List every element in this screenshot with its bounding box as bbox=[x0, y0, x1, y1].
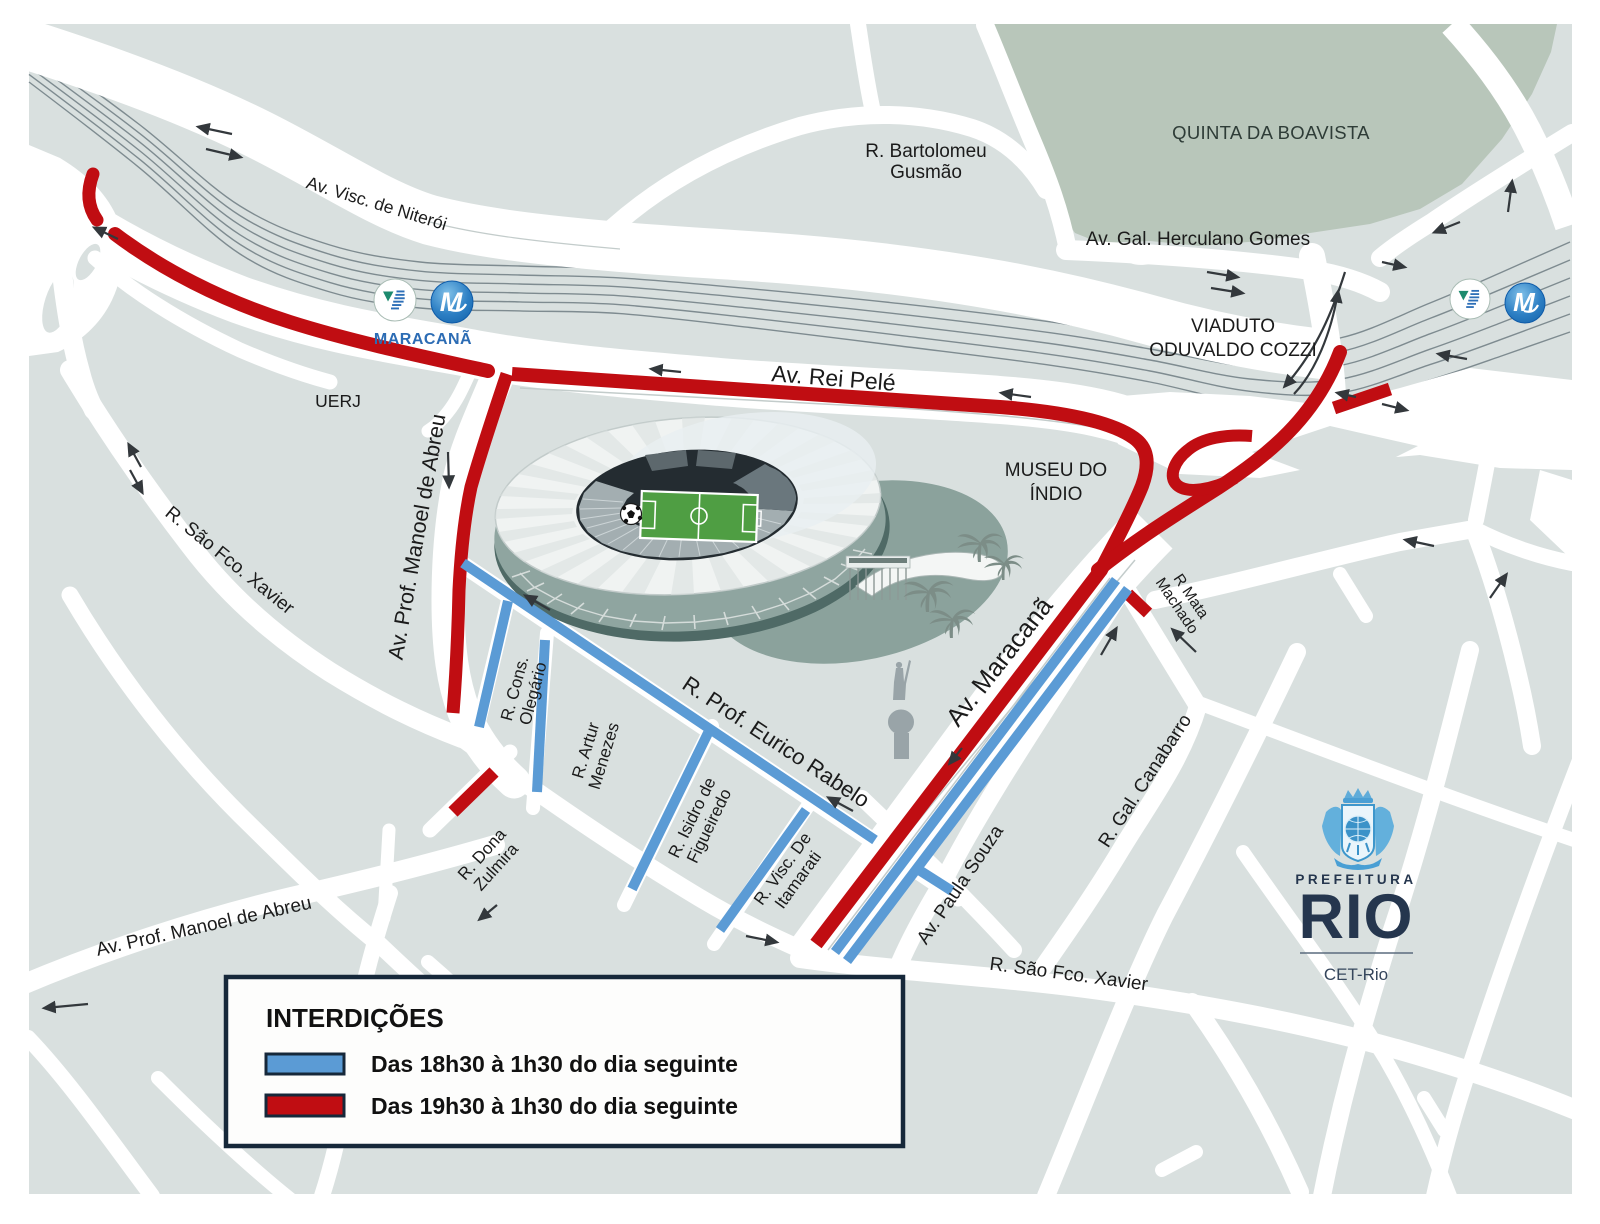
svg-text:Gusmão: Gusmão bbox=[890, 162, 962, 183]
svg-text:M: M bbox=[1513, 287, 1536, 317]
svg-text:Das 19h30 à 1h30 do dia segui: Das 19h30 à 1h30 do dia seguinte bbox=[371, 1093, 738, 1119]
svg-text:VIADUTO: VIADUTO bbox=[1191, 316, 1275, 337]
svg-text:RIO: RIO bbox=[1298, 882, 1413, 952]
svg-text:Das 18h30 à 1h30 do dia seguin: Das 18h30 à 1h30 do dia seguinte bbox=[371, 1051, 738, 1077]
svg-text:CET-Rio: CET-Rio bbox=[1324, 965, 1388, 984]
svg-text:R. Bartolomeu: R. Bartolomeu bbox=[865, 141, 986, 162]
svg-text:M: M bbox=[440, 287, 463, 317]
svg-text:QUINTA DA BOAVISTA: QUINTA DA BOAVISTA bbox=[1172, 122, 1370, 143]
svg-text:INTERDIÇÕES: INTERDIÇÕES bbox=[266, 1003, 444, 1033]
svg-text:ODUVALDO COZZI: ODUVALDO COZZI bbox=[1149, 340, 1317, 361]
svg-text:Av. Gal. Herculano Gomes: Av. Gal. Herculano Gomes bbox=[1086, 229, 1310, 250]
svg-text:MUSEU DO: MUSEU DO bbox=[1005, 460, 1107, 481]
svg-text:ÍNDIO: ÍNDIO bbox=[1030, 484, 1083, 505]
svg-text:MARACANÃ: MARACANÃ bbox=[374, 328, 472, 348]
svg-text:UERJ: UERJ bbox=[315, 391, 361, 411]
